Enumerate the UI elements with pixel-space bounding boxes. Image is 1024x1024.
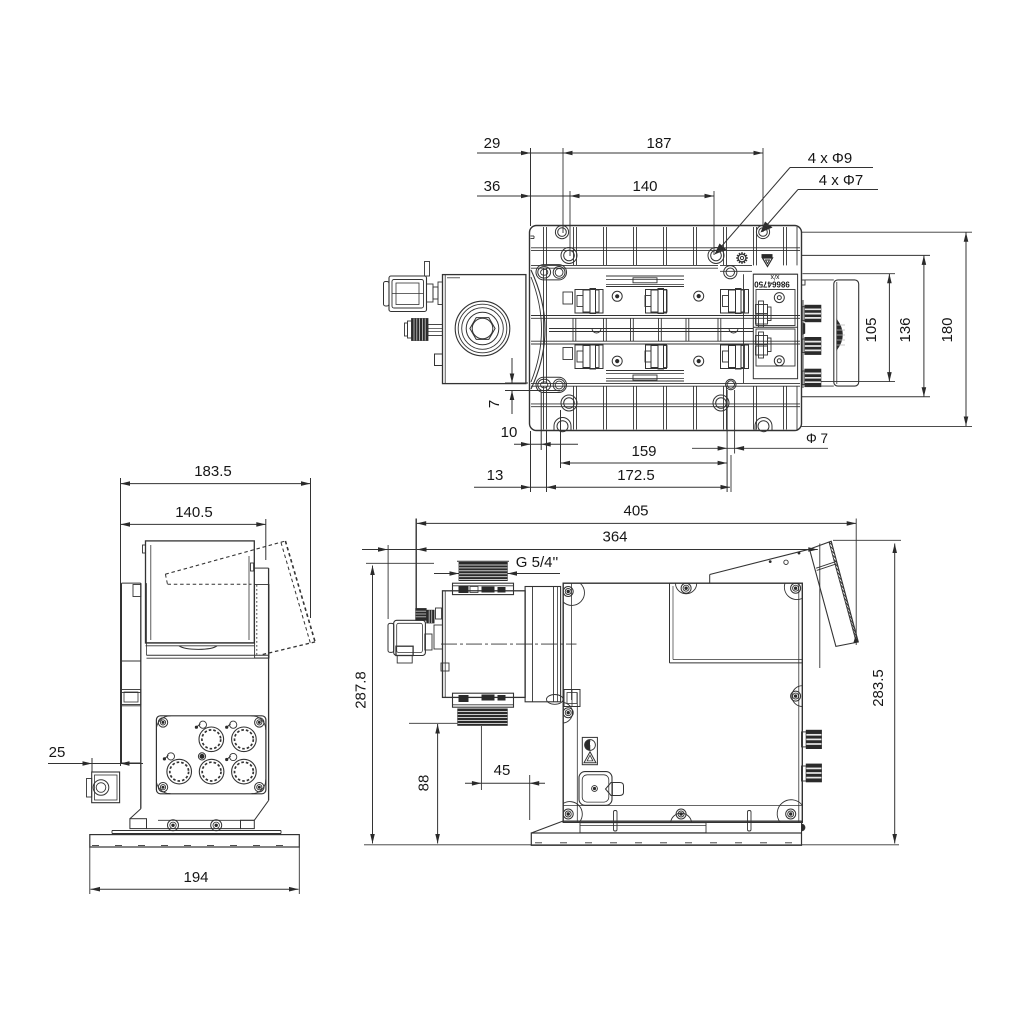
svg-text:29: 29	[484, 135, 501, 152]
svg-text:364: 364	[602, 529, 627, 546]
svg-text:187: 187	[646, 135, 671, 152]
svg-text:25: 25	[49, 744, 66, 761]
svg-text:140.5: 140.5	[175, 504, 213, 521]
svg-text:4 x Φ7: 4 x Φ7	[819, 172, 864, 189]
svg-text:136: 136	[897, 317, 914, 342]
svg-text:180: 180	[939, 317, 956, 342]
svg-text:183.5: 183.5	[194, 463, 232, 480]
svg-text:88: 88	[416, 775, 433, 792]
svg-text:140: 140	[632, 178, 657, 195]
svg-text:287.8: 287.8	[353, 671, 370, 709]
svg-text:10: 10	[501, 424, 518, 441]
svg-text:405: 405	[623, 503, 648, 520]
svg-text:G 5/4'': G 5/4''	[516, 554, 559, 571]
svg-text:7: 7	[486, 400, 503, 408]
svg-text:172.5: 172.5	[617, 467, 655, 484]
svg-text:Φ 7: Φ 7	[806, 431, 828, 446]
svg-text:194: 194	[183, 869, 208, 886]
svg-text:13: 13	[487, 467, 504, 484]
svg-text:159: 159	[631, 443, 656, 460]
svg-text:283.5: 283.5	[870, 669, 887, 707]
svg-text:4 x Φ9: 4 x Φ9	[808, 150, 853, 167]
svg-text:36: 36	[484, 178, 501, 195]
svg-text:105: 105	[863, 317, 880, 342]
svg-text:98664750: 98664750	[754, 280, 790, 289]
svg-text:45: 45	[494, 762, 511, 779]
